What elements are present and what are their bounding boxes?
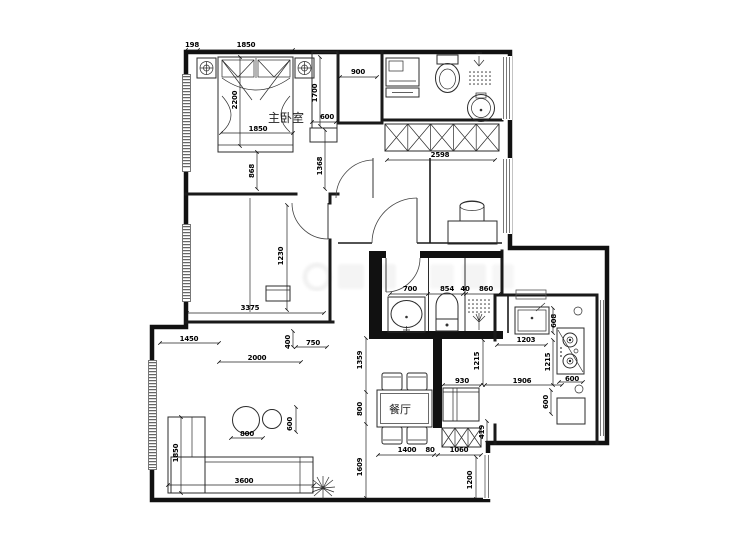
dim-label: 1609 — [356, 457, 364, 476]
shower-2 — [468, 299, 490, 330]
nightstand-right — [295, 58, 314, 78]
dim-label: 700 — [403, 285, 417, 293]
dim-label: 3375 — [241, 304, 260, 312]
coffee-table-small — [263, 410, 282, 429]
dim-label: 2000 — [248, 354, 267, 362]
dim-label: 1450 — [180, 335, 199, 343]
bathroom-2 — [388, 293, 490, 332]
toilet-2 — [436, 293, 458, 331]
dining-chair — [407, 373, 427, 390]
door-hall — [372, 198, 417, 243]
window-bath1-right — [502, 56, 512, 120]
dim-label: 930 — [455, 377, 469, 385]
nightstand-left — [197, 58, 216, 78]
dim-label: 198 — [185, 41, 199, 49]
window-kitchen-top — [516, 290, 546, 299]
dim-label: 1200 — [466, 470, 474, 489]
closet-top — [385, 124, 499, 151]
dim-label: 868 — [248, 164, 256, 178]
room-labels: 主卧室 餐厅 — [268, 110, 411, 416]
entry-zone — [442, 388, 481, 447]
dim-label: 900 — [351, 68, 365, 76]
door-master-bedroom — [336, 158, 373, 198]
dim-label: 600 — [286, 417, 294, 431]
dim-label: 608 — [550, 314, 558, 328]
window-entry-bottom — [483, 453, 492, 499]
master-bedroom — [197, 57, 314, 152]
floor-plan-canvas: 198 1850 2200 1850 868 900 1700 600 1368… — [0, 0, 740, 555]
shower-head-icon — [469, 53, 491, 85]
dining-chair — [407, 427, 427, 444]
room-label-master-bedroom: 主卧室 — [268, 110, 304, 125]
sprayer-icon — [473, 313, 485, 330]
plant-icon — [311, 476, 335, 499]
dim-label: 750 — [306, 339, 320, 347]
dim-label: 1700 — [311, 83, 319, 102]
dim-label: 800 — [356, 402, 364, 416]
sink-2 — [388, 297, 425, 332]
drain-icon — [574, 307, 582, 315]
dim-label: 1203 — [517, 336, 536, 344]
dim-label: 419 — [478, 425, 486, 439]
dim-label: 1850 — [249, 125, 268, 133]
dining-chair — [382, 373, 402, 390]
dim-label: 1215 — [473, 351, 481, 370]
window-kitchen-right — [601, 300, 604, 436]
floor-plan-drawing: 198 1850 2200 1850 868 900 1700 600 1368… — [0, 0, 740, 555]
bathroom-1 — [386, 53, 495, 122]
drain-icon — [575, 385, 583, 393]
dim-label: 600 — [320, 113, 334, 121]
dim-label: 1906 — [513, 377, 532, 385]
washing-machine — [386, 58, 419, 97]
dim-label: 1400 — [398, 446, 417, 454]
dim-label: 600 — [542, 395, 550, 409]
window-master-left — [182, 74, 191, 172]
dim-label: 2200 — [231, 90, 239, 109]
dim-label: 860 — [479, 285, 493, 293]
dim-label: 600 — [565, 375, 579, 383]
dim-label: 800 — [240, 430, 254, 438]
dim-label: 1215 — [544, 352, 552, 371]
dim-label: 2598 — [431, 151, 450, 159]
dim-label: 1850 — [237, 41, 256, 49]
kitchen-column — [557, 398, 585, 424]
stove — [557, 328, 584, 374]
round-basin — [468, 93, 495, 122]
dim-label: 400 — [284, 335, 292, 349]
dim-label: 1359 — [356, 350, 364, 369]
dim-label: 1368 — [316, 156, 324, 175]
dim-label: 1230 — [277, 246, 285, 265]
bed — [218, 57, 293, 152]
toilet-1 — [436, 55, 460, 93]
window-living-left — [148, 360, 157, 470]
dim-label: 1850 — [172, 443, 180, 462]
dim-label: 40 — [460, 285, 470, 293]
dim-label: 80 — [425, 446, 435, 454]
dining-chair — [382, 427, 402, 444]
room-label-dining: 餐厅 — [389, 402, 411, 416]
bedroom-2 — [266, 286, 290, 301]
desk-chair — [460, 201, 484, 221]
kitchen-sink — [515, 303, 549, 334]
study-nook — [448, 201, 497, 244]
window-study-right — [502, 158, 512, 234]
window-bedroom2-left — [182, 224, 191, 302]
dim-label: 1060 — [450, 446, 469, 454]
stool — [266, 286, 290, 301]
shoe-cabinet — [442, 428, 481, 447]
desk — [448, 221, 497, 244]
dim-label: 3600 — [235, 477, 254, 485]
fridge — [443, 388, 479, 421]
dim-label: 854 — [440, 285, 454, 293]
door-bedroom2 — [292, 203, 328, 239]
